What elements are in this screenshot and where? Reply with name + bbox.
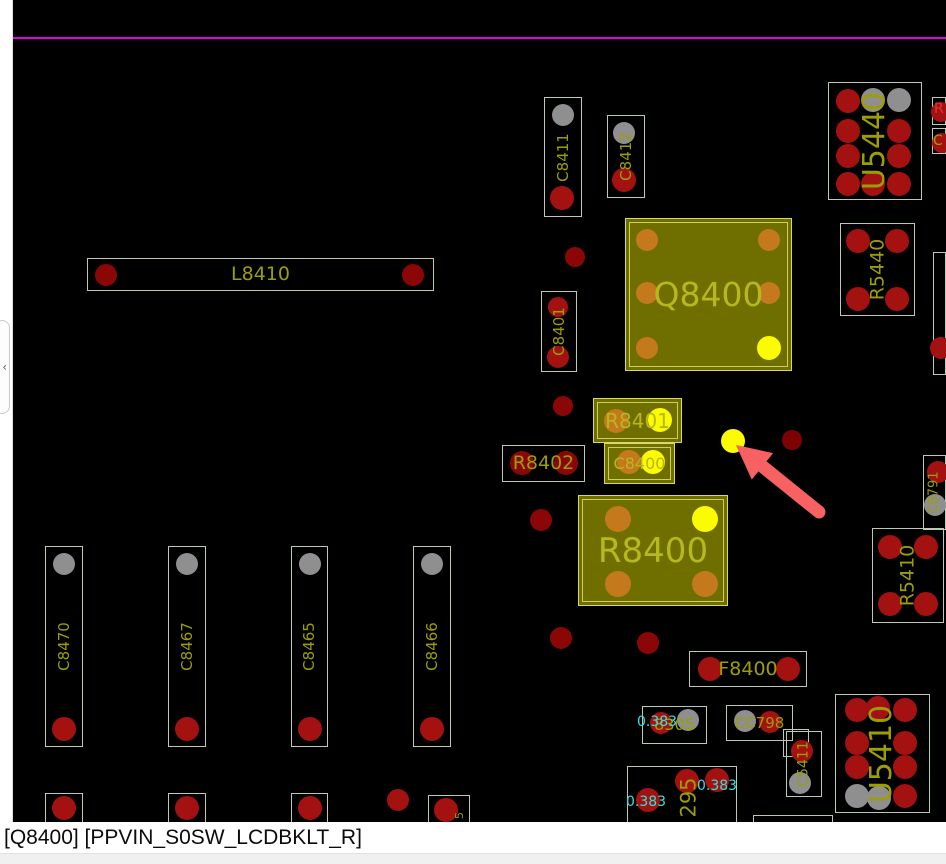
component-pad[interactable] [617,450,641,474]
component-pad[interactable] [612,168,636,192]
component-pad[interactable] [175,717,199,741]
component-pad[interactable] [846,287,870,311]
component-pad[interactable] [52,796,76,820]
component-pad[interactable] [605,506,631,532]
component-pad[interactable] [927,461,946,483]
via-pad[interactable] [387,789,409,811]
component-pad[interactable] [836,172,860,196]
component-pad[interactable] [845,731,869,755]
component-pad[interactable] [636,788,660,812]
component-pad[interactable] [52,717,76,741]
component-pad[interactable] [692,571,718,597]
component-pad[interactable] [887,144,911,168]
component-pad[interactable] [734,710,756,732]
component-pad[interactable] [893,731,917,755]
component-pad[interactable] [675,769,699,793]
component-pad[interactable] [867,786,891,810]
component-pad[interactable] [677,709,699,731]
component-pad[interactable] [776,657,800,681]
component-pad[interactable] [887,88,911,112]
component-pad[interactable] [554,451,578,475]
component-pad[interactable] [641,450,665,474]
component-pad[interactable] [547,346,569,368]
component-pad[interactable] [789,772,811,794]
component-pad[interactable] [878,592,902,616]
component-pad[interactable] [636,282,658,304]
component-pad[interactable] [636,337,658,359]
component-pad[interactable] [836,119,860,143]
component-pad[interactable] [175,796,199,820]
via-pad[interactable] [637,632,659,654]
component-pad[interactable] [885,229,909,253]
window-bottom-strip [0,853,946,864]
via-pad[interactable] [565,247,585,267]
component-pad[interactable] [298,796,322,820]
component-pad[interactable] [861,172,885,196]
component-pad[interactable] [845,784,869,808]
component-pad[interactable] [836,144,860,168]
chevron-left-icon: ‹ [2,361,7,373]
component-pad[interactable] [95,264,117,286]
component-pad[interactable] [758,282,780,304]
component-pad[interactable] [705,768,729,792]
component-pad[interactable] [434,798,458,822]
component-pad[interactable] [931,102,946,122]
component-pad[interactable] [298,717,322,741]
component-pad[interactable] [914,535,938,559]
component-pad[interactable] [893,755,917,779]
via-pad[interactable] [530,509,552,531]
component-pad[interactable] [698,657,722,681]
component-pad[interactable] [757,336,781,360]
component-pad[interactable] [845,755,869,779]
component-pad[interactable] [914,592,938,616]
status-bar: [Q8400] [PPVIN_S0SW_LCDBKLT_R] [0,822,946,853]
component-pad[interactable] [887,119,911,143]
via-pad[interactable] [553,396,573,416]
component-pad[interactable] [636,229,658,251]
left-gutter: ‹ [0,0,13,864]
via-pad[interactable] [782,430,802,450]
component-pad[interactable] [846,229,870,253]
component-pad[interactable] [932,133,946,153]
component-pad[interactable] [885,287,909,311]
component-pad[interactable] [893,698,917,722]
component-pad[interactable] [420,717,444,741]
component-pad[interactable] [299,553,321,575]
component-pad[interactable] [604,409,628,433]
component-pad[interactable] [759,711,781,733]
component-pad[interactable] [605,571,631,597]
component-pad[interactable] [893,784,917,808]
component-pad[interactable] [878,535,902,559]
component-pad[interactable] [176,553,198,575]
component-pad[interactable] [692,506,718,532]
highlighted-net-pin[interactable] [721,429,745,453]
board-outline-line [13,37,946,39]
component-L8410[interactable] [87,258,434,291]
component-pad[interactable] [53,553,75,575]
boardview-window: ‹ [Q8400] [PPVIN_S0SW_LCDBKLT_R] C8411C8… [0,0,946,864]
component-pad[interactable] [648,408,672,432]
component-pad[interactable] [866,696,890,720]
component-pad[interactable] [402,264,424,286]
component-pad[interactable] [861,88,885,112]
component-pad[interactable] [421,553,443,575]
component-pad[interactable] [791,740,813,762]
component-pad[interactable] [758,229,780,251]
status-net-text: [Q8400] [PPVIN_S0SW_LCDBKLT_R] [4,826,362,850]
component-pad[interactable] [887,172,911,196]
component-pad[interactable] [836,89,860,113]
component-pad[interactable] [548,297,568,317]
via-pad[interactable] [550,627,572,649]
sidebar-flyout-handle[interactable]: ‹ [0,320,10,414]
component-pad[interactable] [650,712,672,734]
component-pad[interactable] [550,186,574,210]
component-pad[interactable] [613,122,635,144]
component-pad[interactable] [552,104,574,126]
component-pad[interactable] [930,337,946,359]
component-pad[interactable] [924,494,946,516]
component-pad[interactable] [510,451,534,475]
pcb-canvas[interactable] [13,0,946,823]
